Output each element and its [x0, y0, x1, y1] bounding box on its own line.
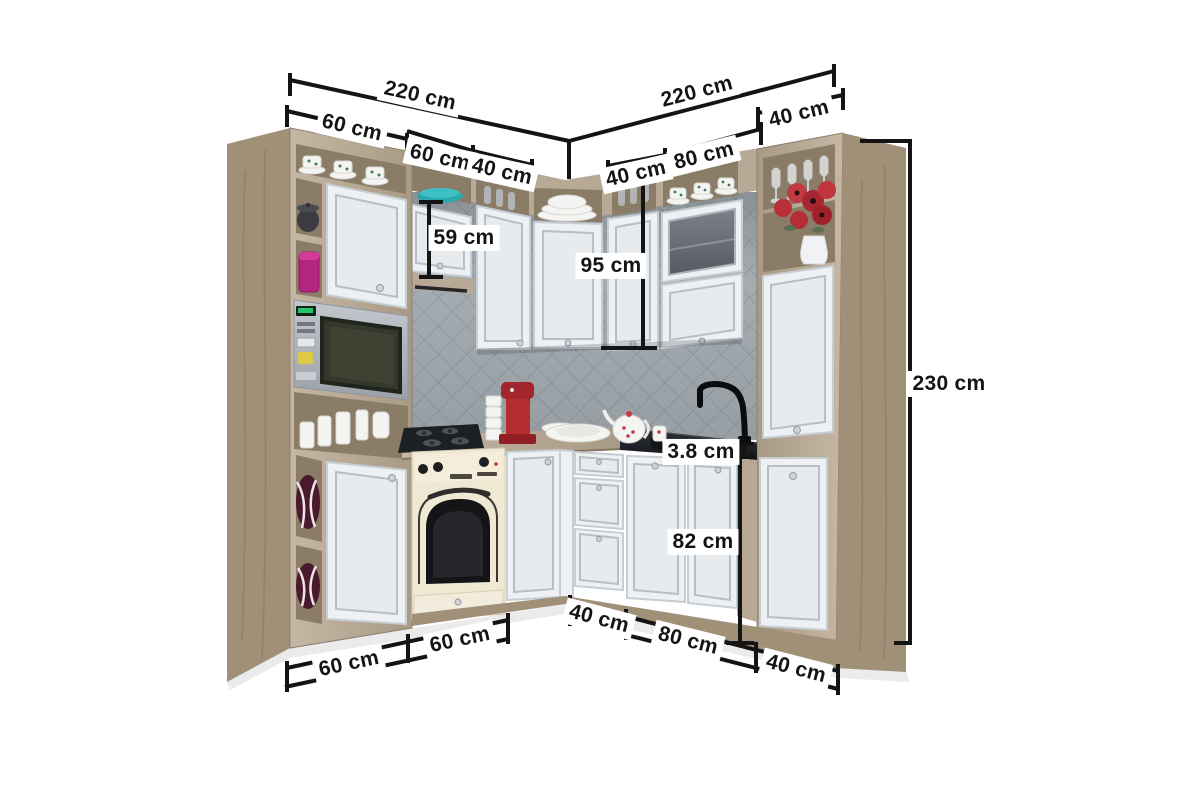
maroon-pot-1	[296, 475, 320, 529]
drawer-unit	[575, 452, 623, 590]
microwave	[294, 300, 408, 400]
maroon-pot-2	[296, 563, 320, 609]
dim-label-base-cabinet-height: 82 cm	[667, 529, 738, 555]
dim-label-total-height: 230 cm	[907, 371, 990, 397]
oven	[412, 448, 505, 620]
microwave-start-button	[298, 352, 313, 364]
magenta-canister	[299, 252, 319, 292]
dark-pot	[297, 203, 319, 232]
dim-label-hob-cabinet-height: 59 cm	[428, 225, 499, 251]
gas-cooktop	[398, 424, 484, 453]
kitchen-render	[0, 0, 1190, 800]
dim-label-wall-cabinet-height: 95 cm	[575, 253, 646, 279]
right-tall-cabinet	[757, 133, 906, 672]
left-tall-cabinet	[227, 128, 412, 682]
microwave-display	[298, 308, 313, 313]
cup-stack	[486, 396, 501, 440]
kitchen-dimension-diagram: 220 cm 220 cm 60 cm 60 cm 40 cm 40 cm 80…	[0, 0, 1190, 800]
dim-label-worktop-thickness: 3.8 cm	[662, 439, 739, 465]
